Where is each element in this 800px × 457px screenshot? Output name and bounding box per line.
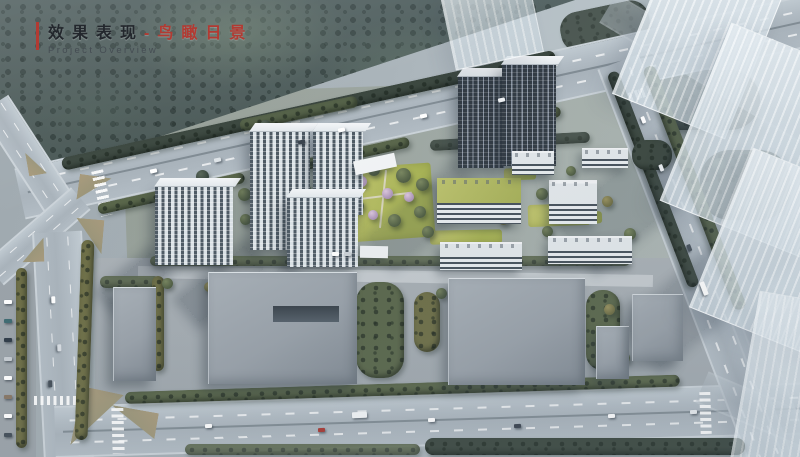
parked-car <box>4 414 12 418</box>
tree <box>162 278 173 289</box>
midrise-slab <box>548 236 632 264</box>
car <box>58 344 62 351</box>
commercial-building <box>632 294 683 361</box>
tree <box>396 168 411 183</box>
page-title-highlight: -鸟瞰日景 <box>144 19 253 43</box>
tree <box>414 206 426 218</box>
midrise-slab <box>512 151 554 175</box>
aerial-rendering: 效果表现-鸟瞰日景 Project Overview <box>0 0 800 457</box>
midrise-slab <box>440 242 522 270</box>
residential-tower-dark <box>458 76 505 168</box>
crosswalk <box>111 408 124 454</box>
parked-car <box>4 357 12 361</box>
parked-car <box>4 395 12 399</box>
midrise-slab <box>582 148 628 168</box>
tree <box>602 196 613 207</box>
tree-cluster <box>356 282 404 378</box>
tree-cluster <box>632 140 672 170</box>
tree-strip <box>16 268 27 448</box>
title-block: 效果表现-鸟瞰日景 Project Overview <box>36 19 253 56</box>
flowering-tree <box>404 192 414 202</box>
accent-bar <box>36 22 39 50</box>
tree <box>566 166 576 176</box>
tree-strip <box>425 438 745 455</box>
tree <box>604 304 615 315</box>
flowering-tree <box>368 210 378 220</box>
tree <box>416 178 429 191</box>
parked-car <box>4 376 12 380</box>
car <box>205 424 212 428</box>
car <box>514 424 521 428</box>
midrise-slab <box>549 180 597 224</box>
tree <box>388 214 401 227</box>
parked-car <box>4 319 12 323</box>
midrise-slab-greenroof <box>437 178 521 224</box>
commercial-building <box>208 272 357 384</box>
page-title-zh: 效果表现 <box>48 19 144 43</box>
car <box>608 414 615 418</box>
commercial-building <box>448 278 585 385</box>
residential-tower <box>155 186 233 265</box>
parked-car <box>4 300 12 304</box>
car <box>318 428 325 432</box>
car <box>332 252 339 256</box>
car <box>344 252 351 256</box>
parked-car <box>4 433 12 437</box>
car <box>428 418 435 422</box>
residential-tower <box>287 197 358 267</box>
commercial-building <box>113 287 156 381</box>
tree <box>436 288 447 299</box>
tree-strip <box>185 444 420 455</box>
parked-car <box>4 338 12 342</box>
car <box>52 296 56 303</box>
truck <box>352 412 367 419</box>
commercial-building <box>596 326 629 379</box>
roof-slot <box>273 306 339 322</box>
car <box>690 410 697 414</box>
tree <box>422 226 434 238</box>
tree-cluster <box>414 292 440 352</box>
gatehouse <box>360 246 388 258</box>
crosswalk <box>34 396 76 405</box>
page-subtitle-en: Project Overview <box>48 45 253 56</box>
car <box>49 380 53 387</box>
flowering-tree <box>382 188 393 199</box>
crosswalk <box>699 392 711 434</box>
tree <box>536 188 548 200</box>
